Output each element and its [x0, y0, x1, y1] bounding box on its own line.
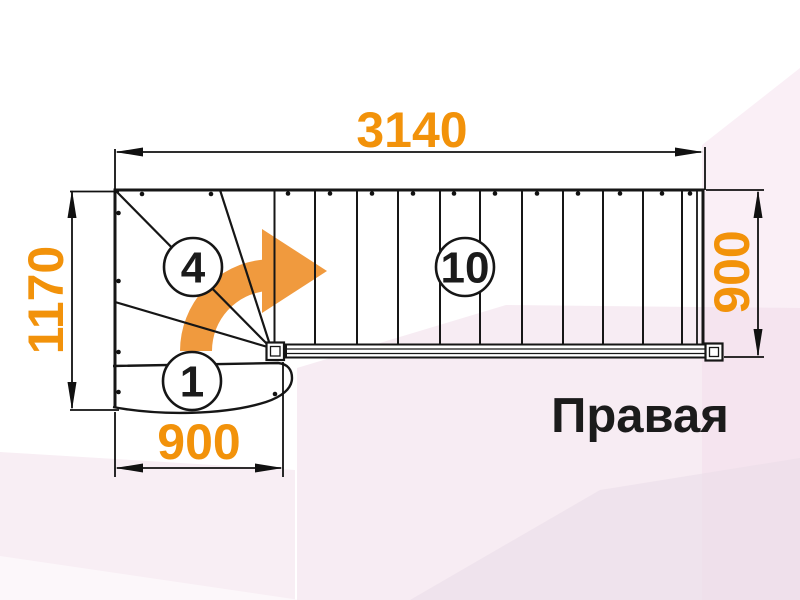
baluster-dot — [493, 191, 498, 196]
dimension-label-top: 3140 — [356, 102, 467, 158]
stringer-outline — [286, 345, 706, 358]
baluster-dot — [273, 392, 278, 397]
baluster-dot — [209, 192, 214, 197]
baluster-dot — [116, 390, 121, 395]
baluster-dot — [452, 191, 457, 196]
step-number-first: 1 — [180, 358, 204, 407]
baluster-dot — [576, 191, 581, 196]
baluster-dot — [116, 211, 121, 216]
baluster-dot — [660, 191, 665, 196]
dimension-label-right: 900 — [704, 230, 760, 313]
dimension-label-bottom: 900 — [157, 414, 240, 470]
baluster-dot — [286, 191, 291, 196]
baluster-dot — [411, 191, 416, 196]
step-number-straight: 10 — [441, 244, 490, 293]
stair-plan-svg: 4 10 1 3140 1170 900 900 — [0, 0, 800, 600]
stringer-band — [286, 345, 706, 358]
stair-plan-screenshot: 4 10 1 3140 1170 900 900 — [0, 0, 800, 600]
baluster-dot — [116, 350, 121, 355]
newel-post-left-inner — [271, 347, 281, 357]
step-number-winder: 4 — [181, 244, 206, 293]
baluster-dot — [328, 191, 333, 196]
baluster-dot — [688, 191, 693, 196]
baluster-dot — [370, 191, 375, 196]
dimension-label-left: 1170 — [18, 246, 74, 354]
baluster-dot — [140, 192, 145, 197]
baluster-dot — [535, 191, 540, 196]
direction-label: Правая — [551, 389, 729, 443]
newel-post-right-inner — [710, 348, 719, 357]
baluster-dot — [618, 191, 623, 196]
baluster-dot — [116, 279, 121, 284]
